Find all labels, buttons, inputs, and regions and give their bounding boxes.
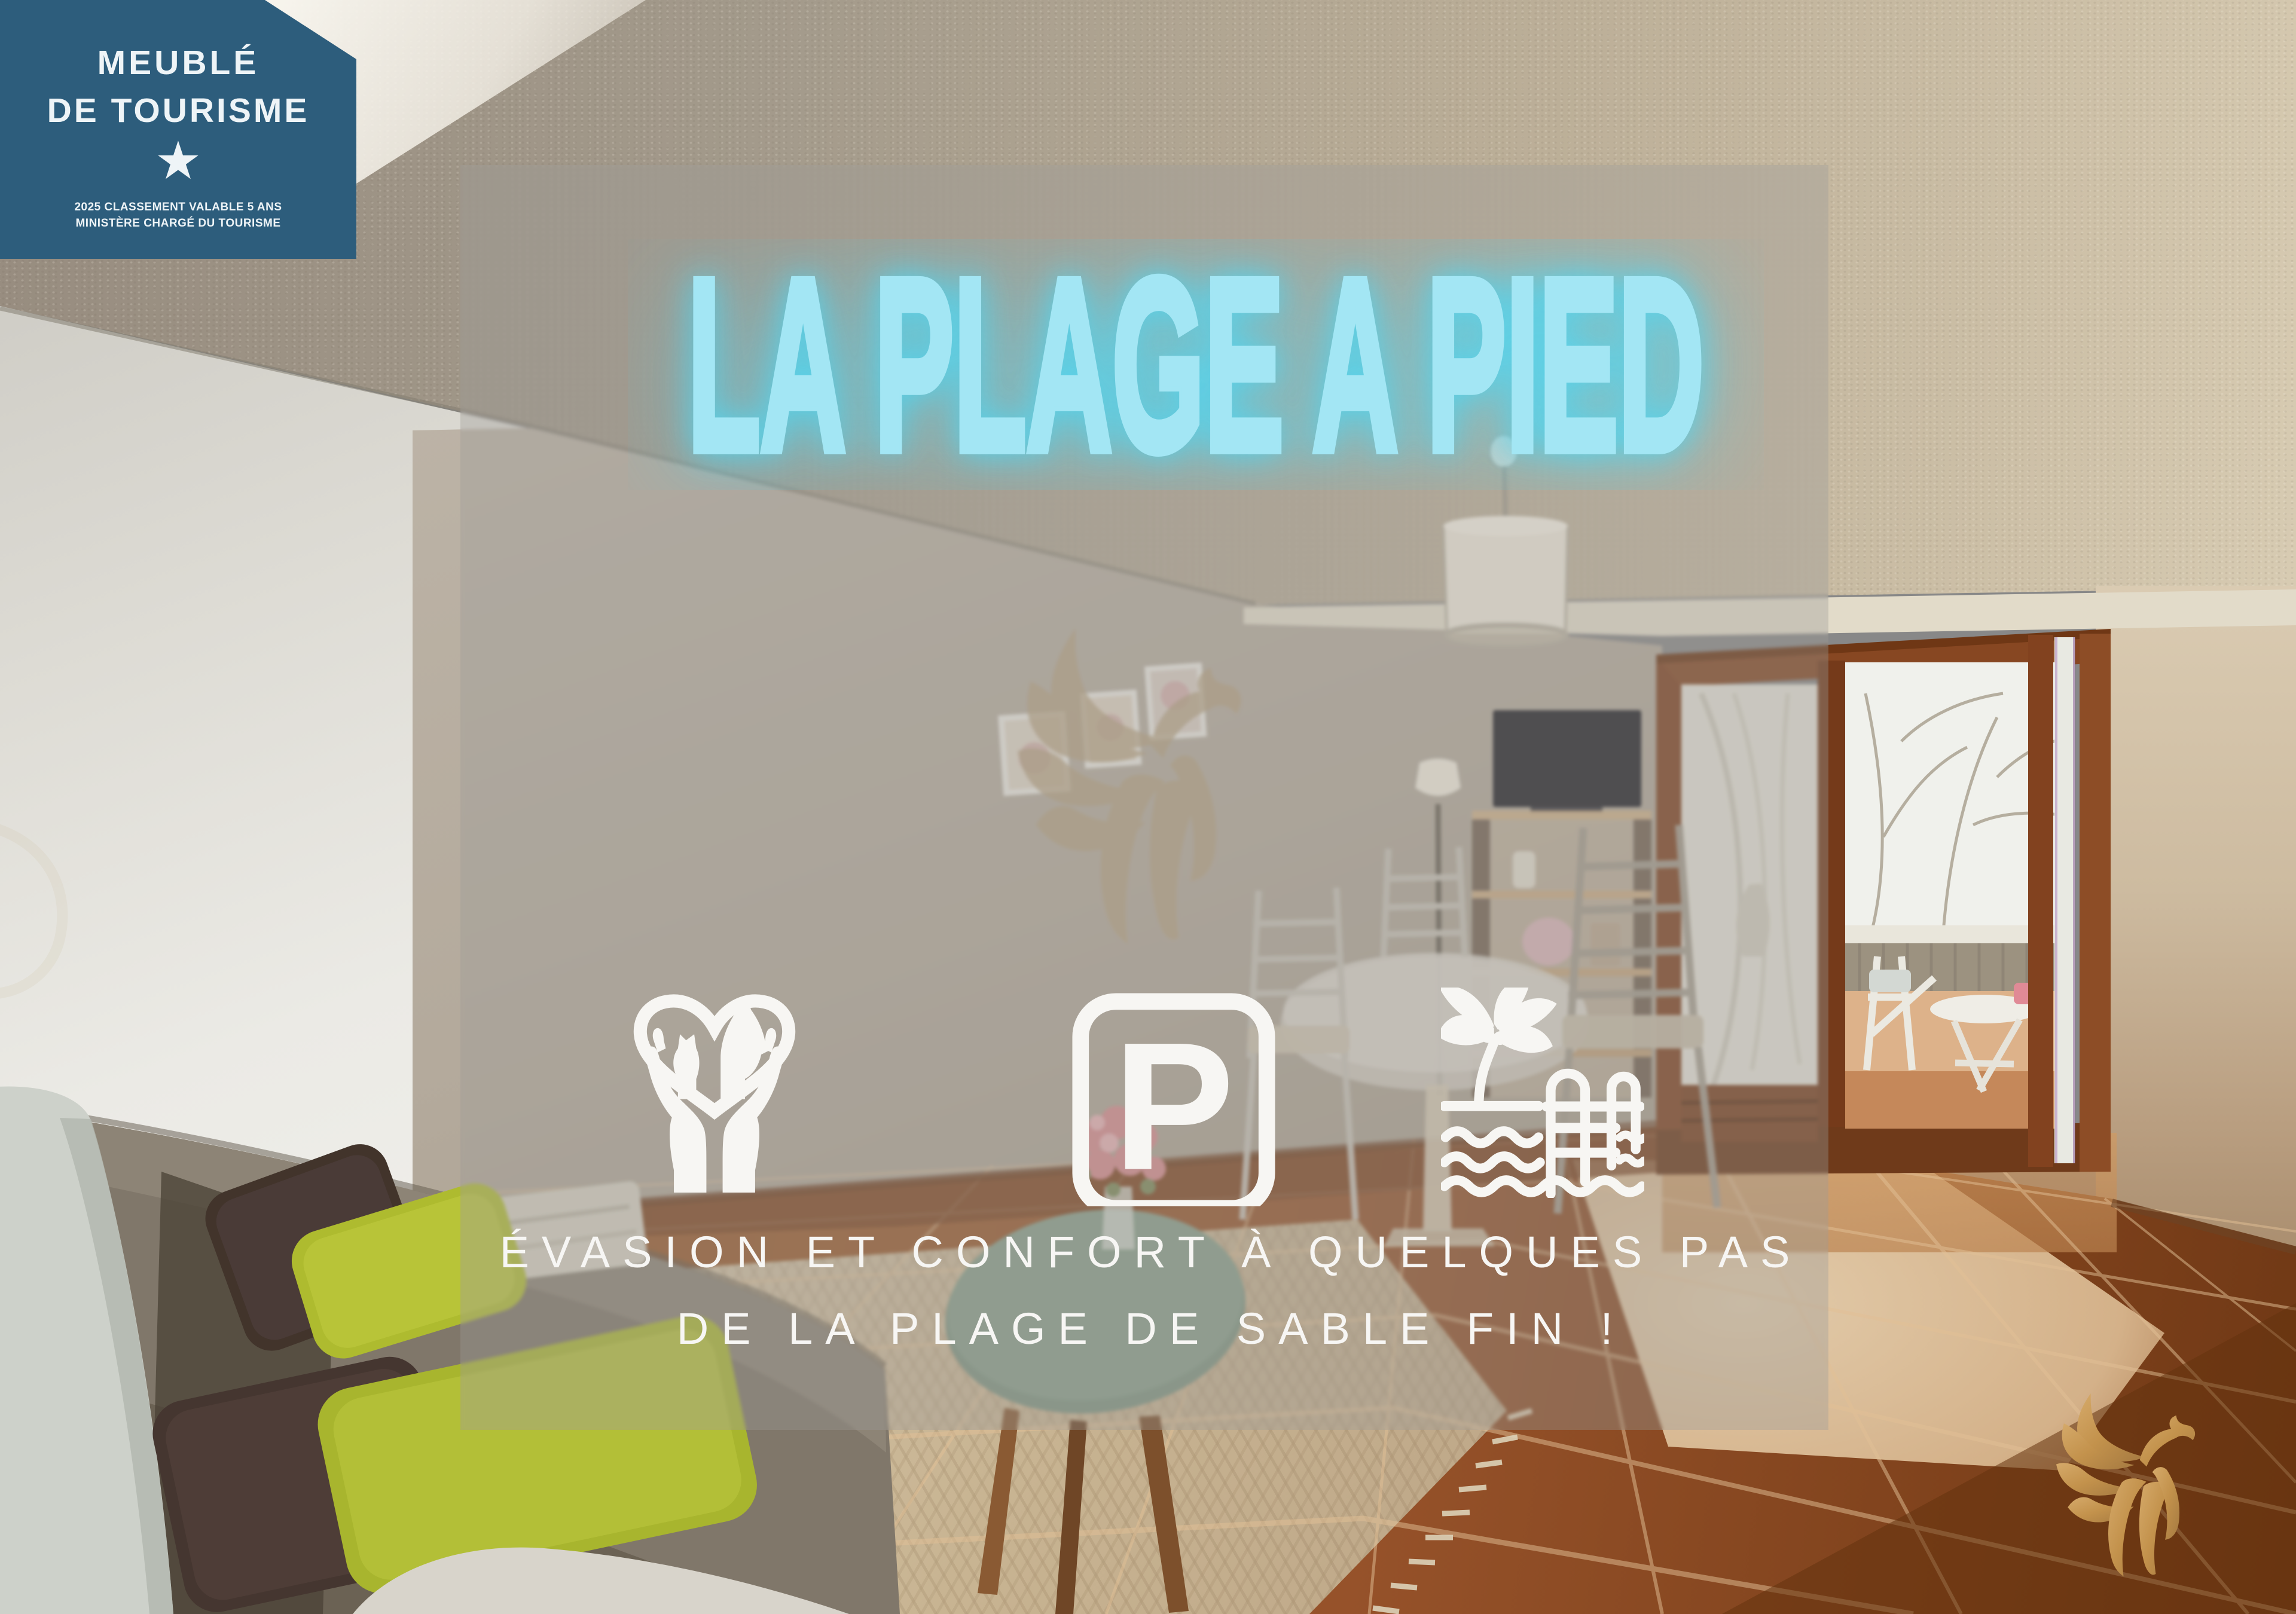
svg-text:P: P: [1113, 1004, 1234, 1206]
svg-text:LA PLAGE A PIED: LA PLAGE A PIED: [688, 239, 1704, 490]
